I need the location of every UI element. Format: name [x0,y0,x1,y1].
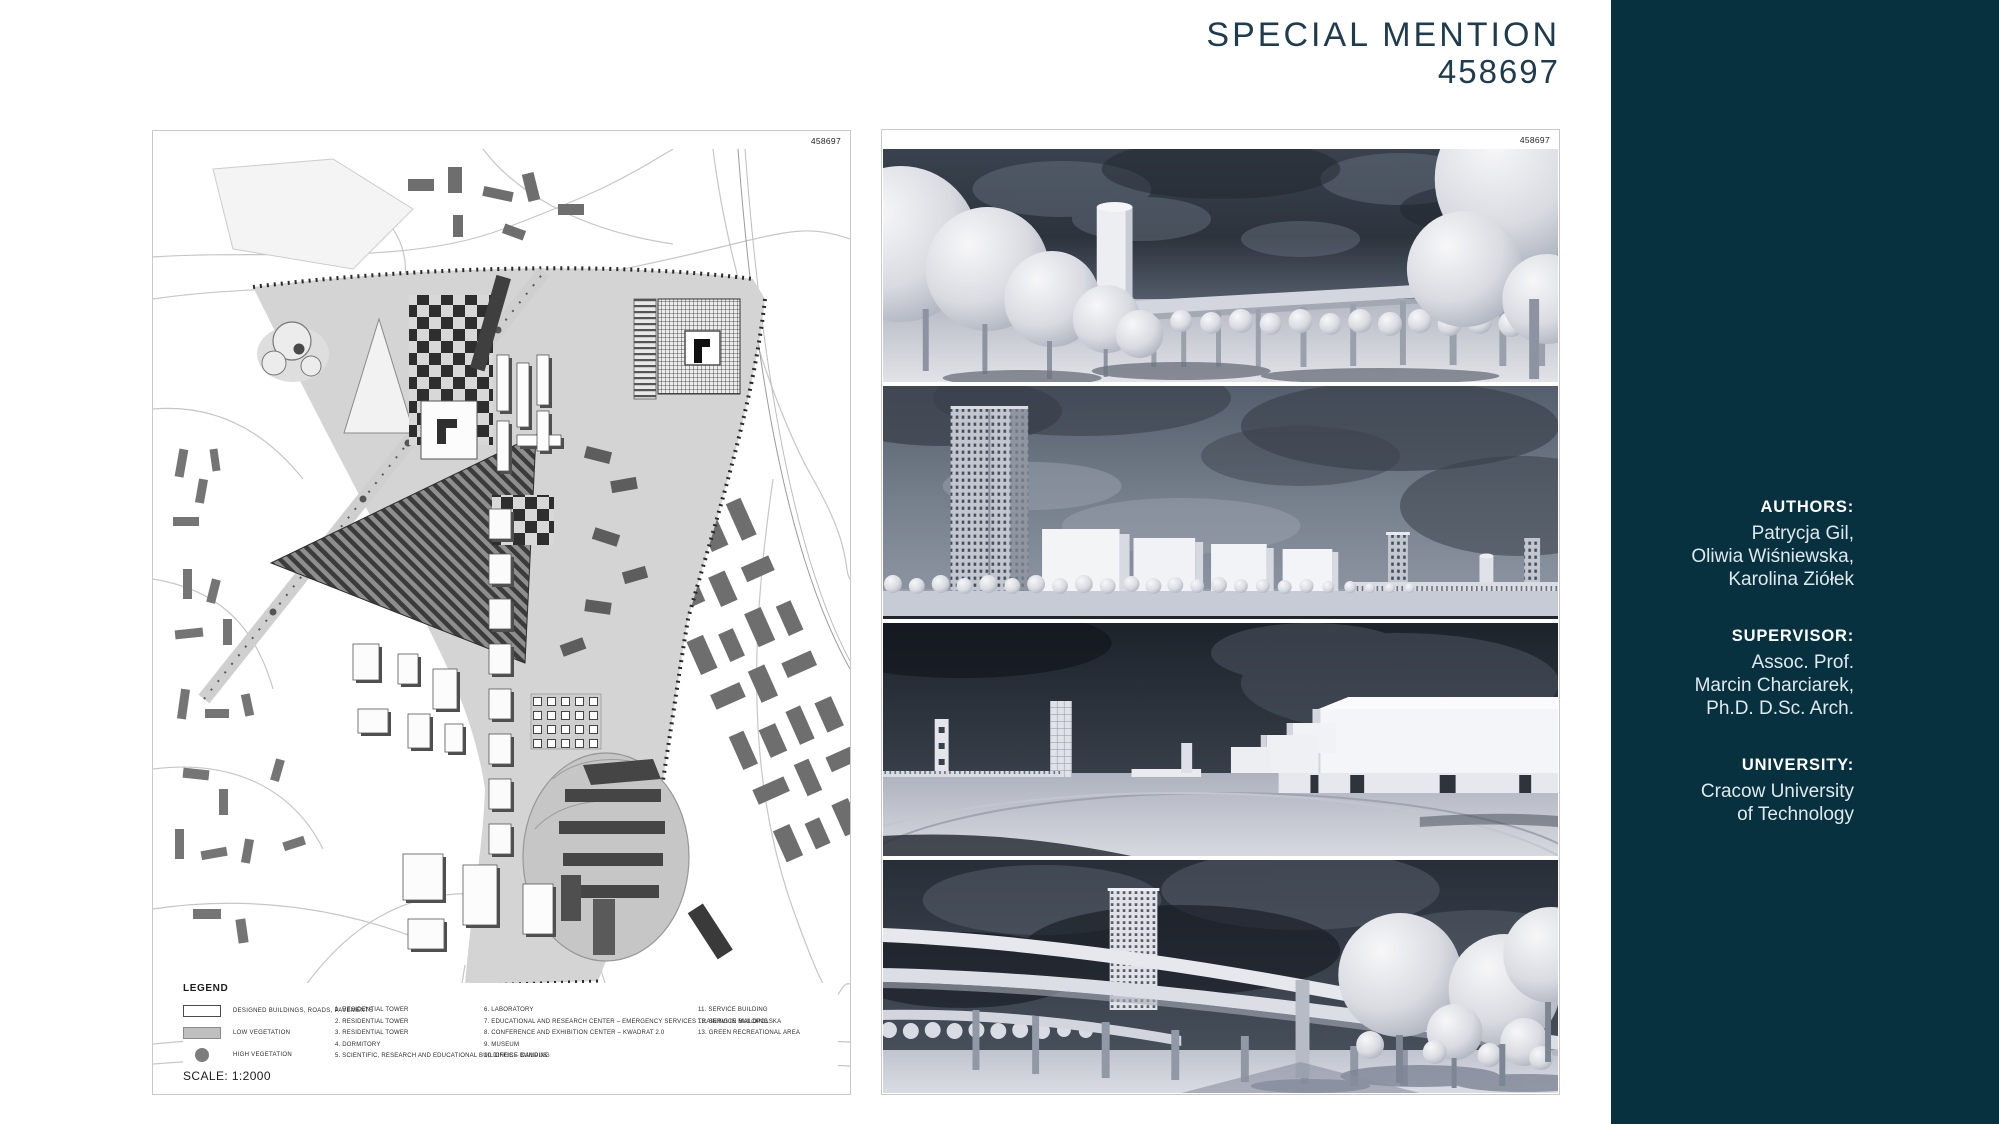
poster-page: SPECIAL MENTION 458697 458697 [0,0,1999,1124]
legend-item: 11. SERVICE BUILDING [698,1005,800,1017]
entry-number: 458697 [1206,54,1560,90]
supervisor-name: Marcin Charciarek, [1691,674,1854,697]
board-number-left: 458697 [811,136,841,146]
render-skyline-image [883,386,1558,619]
authors-section: AUTHORS: Patrycja Gil, Oliwia Wiśniewska… [1691,498,1854,591]
board-number-right: 458697 [1520,135,1550,145]
supervisor-section: SUPERVISOR: Assoc. Prof. Marcin Charciar… [1691,627,1854,720]
siteplan-drawing [153,149,850,1089]
author-name: Oliwia Wiśniewska, [1691,545,1854,568]
render-canopy-trees-image [883,149,1558,382]
swatch-label: HIGH VEGETATION [233,1052,292,1058]
gray-circle-swatch [183,1048,221,1062]
author-name: Karolina Ziółek [1691,568,1854,591]
renders-board: 458697 [881,129,1560,1095]
white-rect-swatch [183,1005,221,1017]
scale-label: SCALE: 1:2000 [183,1069,271,1083]
credits-content: AUTHORS: Patrycja Gil, Oliwia Wiśniewska… [1691,498,1854,862]
university-label: UNIVERSITY: [1691,756,1854,775]
university-section: UNIVERSITY: Cracow University of Technol… [1691,756,1854,826]
credits-sidebar: AUTHORS: Patrycja Gil, Oliwia Wiśniewska… [1611,0,1999,1124]
legend-item: 13. GREEN RECREATIONAL AREA [698,1028,800,1040]
swatch-label: LOW VEGETATION [233,1030,290,1036]
legend-title: LEGEND [183,983,838,994]
authors-label: AUTHORS: [1691,498,1854,517]
render-overpass-image [883,860,1558,1093]
legend-item: 12. SERVICE BUILDING [698,1017,800,1029]
author-name: Patrycja Gil, [1691,522,1854,545]
university-name: Cracow University [1691,780,1854,803]
legend: LEGEND DESIGNED BUILDINGS, ROADS, PAVEME… [183,983,838,1069]
gray-rect-swatch [183,1027,221,1039]
award-title: SPECIAL MENTION [1206,16,1560,54]
legend-item: 9. MUSEUM [484,1040,781,1052]
render-museum-image [883,623,1558,856]
legend-item: 10. OFFICE BUILDING [484,1051,781,1063]
supervisor-label: SUPERVISOR: [1691,627,1854,646]
award-title-block: SPECIAL MENTION 458697 [1206,16,1560,90]
supervisor-name: Assoc. Prof. [1691,651,1854,674]
university-name: of Technology [1691,803,1854,826]
siteplan-board: 458697 [152,130,851,1095]
supervisor-name: Ph.D. D.Sc. Arch. [1691,697,1854,720]
